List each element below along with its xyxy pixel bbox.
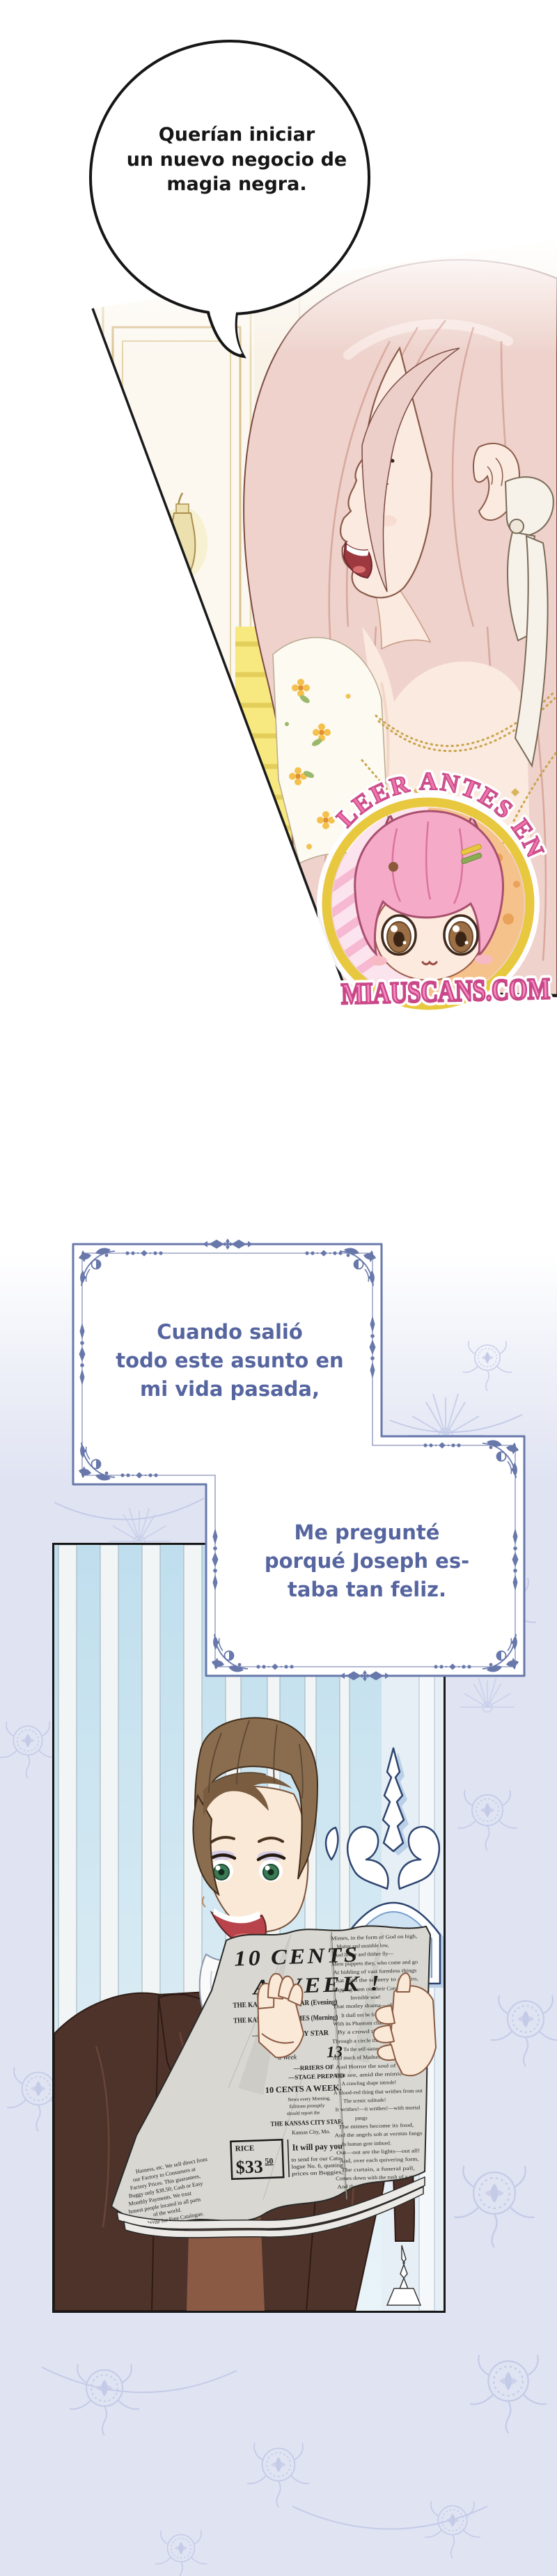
speech-bubble xyxy=(70,28,397,376)
svg-text:should report the: should report the xyxy=(287,2110,320,2116)
chibi-mascot xyxy=(355,811,503,980)
narration-line: Me pregunté xyxy=(221,1518,513,1547)
svg-text:50: 50 xyxy=(265,2156,273,2166)
svg-text:—RRIERS OF: —RRIERS OF xyxy=(293,2064,335,2072)
comic-page: LEER ANTES EN LEER ANTES EN MIAUSCANS.CO… xyxy=(0,0,557,2576)
speech-bubble-text: Querían iniciar un nuevo negocio de magi… xyxy=(97,123,376,197)
svg-text:pangs: pangs xyxy=(355,2114,368,2121)
svg-text:MIAUSCANS.COM: MIAUSCANS.COM xyxy=(340,973,550,1011)
bubble-line: un nuevo negocio de xyxy=(97,148,376,173)
bubble-line: magia negra. xyxy=(97,172,376,197)
narration-line: Cuando salió xyxy=(91,1318,369,1346)
svg-text:The scenic solitude!: The scenic solitude! xyxy=(343,2097,386,2105)
narration-line: taba tan feliz. xyxy=(221,1576,513,1604)
watermark-site-text: MIAUSCANS.COM MIAUSCANS.COM xyxy=(340,973,550,1011)
narration-line: porqué Joseph es- xyxy=(221,1547,513,1576)
narration-box-2-text: Me pregunté porqué Joseph es- taba tan f… xyxy=(221,1518,513,1605)
ornamental-note-frame xyxy=(59,1229,540,1692)
svg-text:RICE: RICE xyxy=(235,2144,255,2153)
narration-box-1-text: Cuando salió todo este asunto en mi vida… xyxy=(91,1318,369,1404)
svg-text:Invisible woe!: Invisible woe! xyxy=(350,1994,381,2001)
left-hand xyxy=(258,1974,304,2057)
svg-text:In human gore imbued.: In human gore imbued. xyxy=(342,2139,391,2147)
svg-text:It will pay you: It will pay you xyxy=(292,2141,343,2153)
narration-line: mi vida pasada, xyxy=(91,1375,369,1404)
bubble-line: Querían iniciar xyxy=(97,123,376,148)
svg-text:$33: $33 xyxy=(235,2156,263,2177)
narration-line: todo este asunto en xyxy=(91,1346,369,1375)
